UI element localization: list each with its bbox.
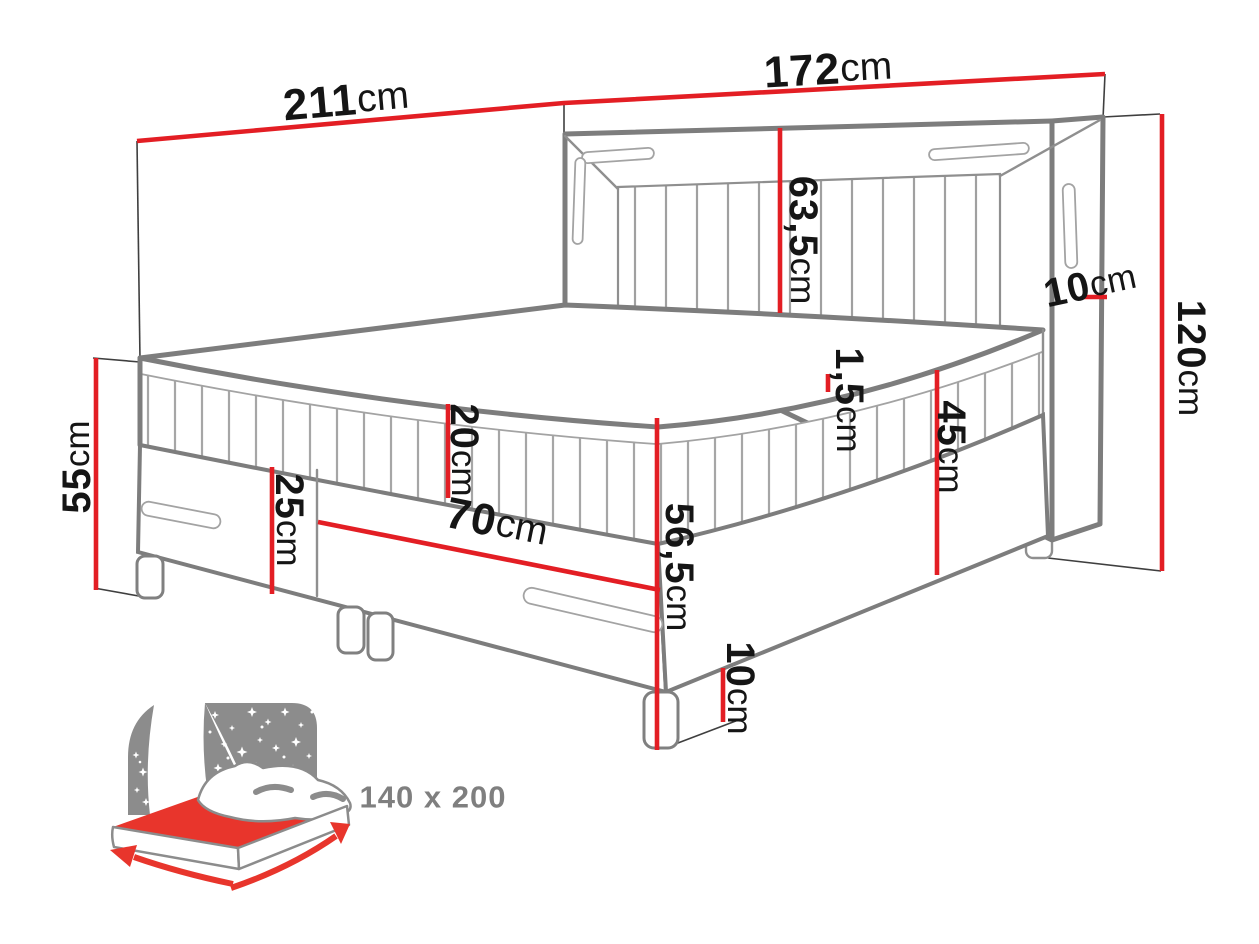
leg-front-left (137, 556, 163, 598)
dim-label-mattress-base-height: 45cm (929, 400, 973, 493)
dim-label-leg-height: 10cm (718, 641, 762, 734)
diagram-canvas: 211cm 172cm 63,5cm 10cm 120cm 55cm 20cm … (0, 0, 1259, 944)
dim-label-mattress-height: 20cm (442, 403, 486, 496)
dim-label-left-side-height: 55cm (55, 420, 99, 513)
size-icon (110, 703, 351, 888)
leg-middle-a (338, 607, 364, 653)
dim-label-base-height: 25cm (267, 473, 311, 566)
headboard-side-panel (1052, 117, 1103, 540)
leg-middle-b (368, 613, 393, 660)
dim-label-headboard-height: 120cm (1169, 300, 1213, 416)
size-icon-label: 140 x 200 (360, 780, 507, 815)
dim-label-corner-height: 56,5cm (657, 503, 701, 632)
icon-sky-panel-small (128, 705, 154, 815)
dim-label-total-width: 211cm (281, 70, 411, 130)
leg-front-corner (644, 692, 678, 748)
dim-label-topper-height: 1,5cm (827, 347, 871, 452)
dim-label-headboard-above-mattress: 63,5cm (781, 176, 825, 305)
bed-dimension-drawing: 211cm 172cm 63,5cm 10cm 120cm 55cm 20cm … (0, 0, 1259, 944)
